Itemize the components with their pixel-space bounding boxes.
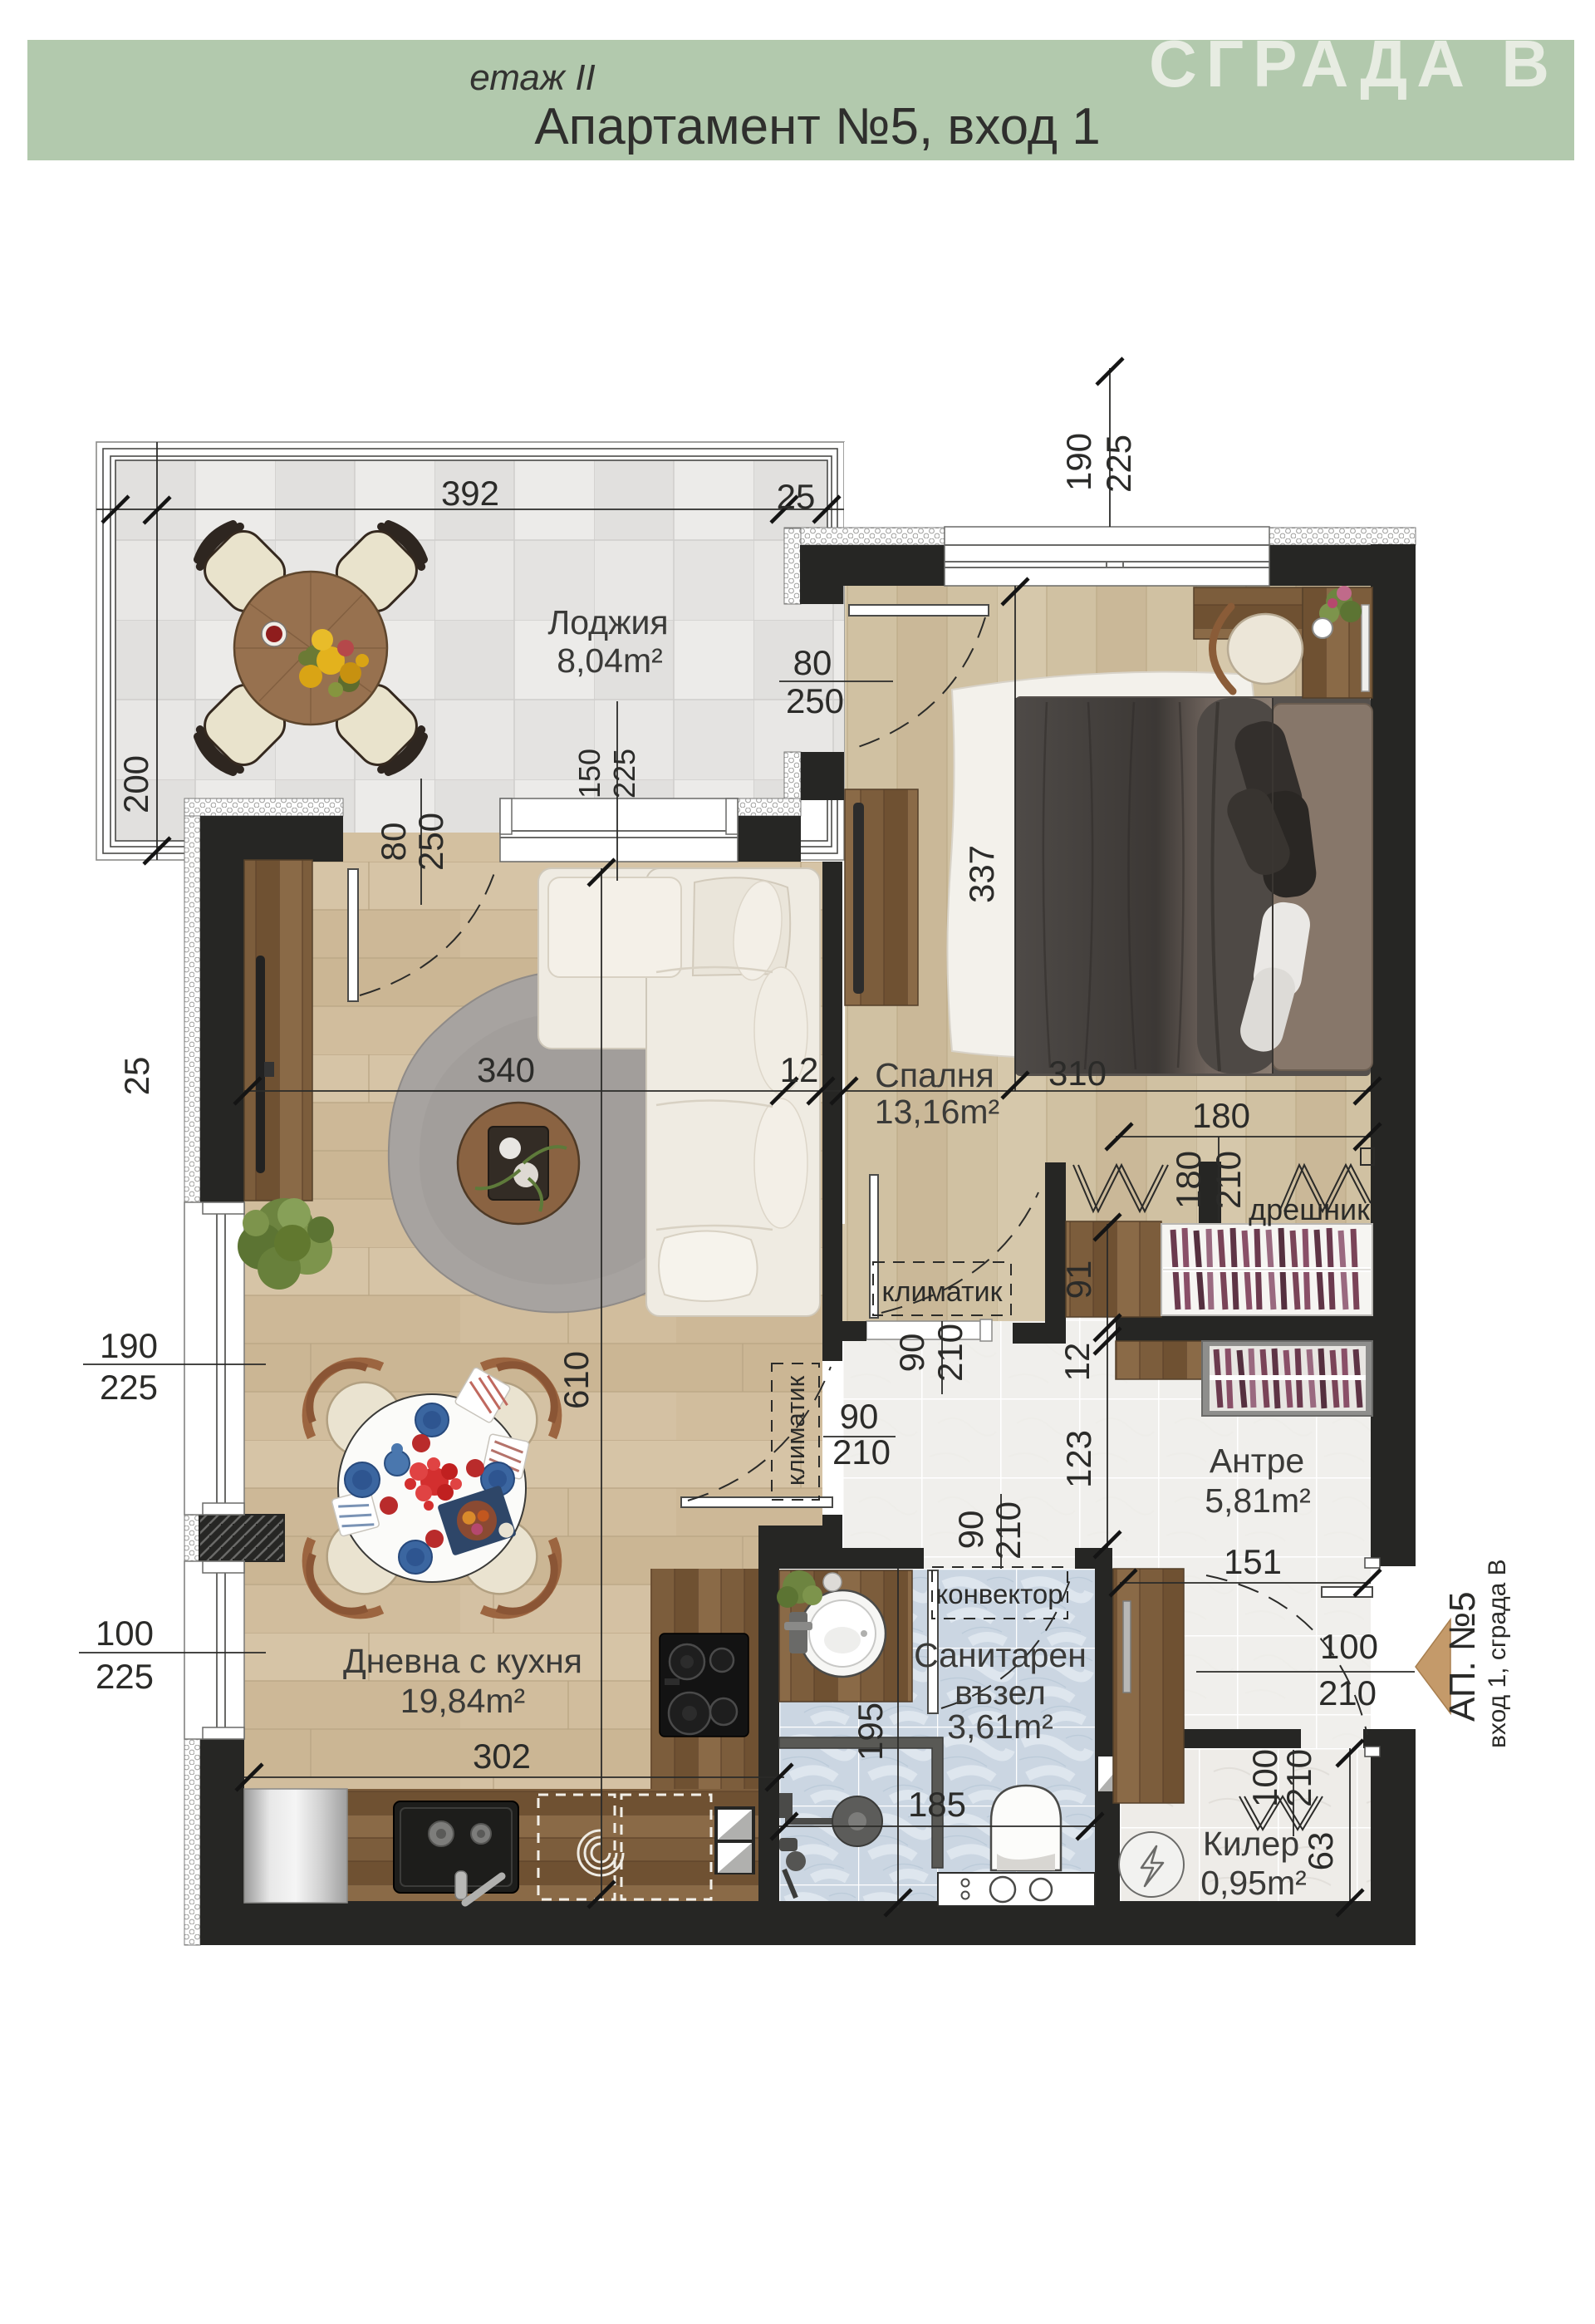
svg-text:етаж II: етаж II	[469, 57, 596, 98]
svg-text:210: 210	[1318, 1673, 1377, 1712]
svg-text:Санитарен: Санитарен	[914, 1636, 1087, 1674]
svg-text:250: 250	[786, 681, 844, 720]
svg-text:123: 123	[1059, 1430, 1098, 1488]
svg-text:Килер: Килер	[1203, 1825, 1299, 1863]
svg-text:80: 80	[793, 643, 832, 682]
svg-text:190: 190	[100, 1326, 158, 1365]
svg-text:12: 12	[780, 1050, 819, 1089]
svg-text:210: 210	[989, 1501, 1028, 1560]
svg-text:80: 80	[374, 823, 413, 862]
svg-text:195: 195	[851, 1702, 890, 1761]
svg-text:310: 310	[1048, 1054, 1107, 1093]
svg-text:25: 25	[777, 477, 816, 516]
svg-text:90: 90	[840, 1397, 879, 1436]
svg-text:Лоджия: Лоджия	[547, 603, 668, 641]
svg-text:възел: възел	[955, 1673, 1046, 1712]
svg-text:180: 180	[1192, 1096, 1250, 1135]
svg-text:392: 392	[441, 474, 499, 513]
svg-text:90: 90	[892, 1334, 931, 1373]
svg-text:91: 91	[1059, 1260, 1098, 1300]
svg-text:климатик: климатик	[881, 1276, 1003, 1308]
svg-text:25: 25	[117, 1057, 156, 1096]
svg-text:100: 100	[1320, 1627, 1378, 1666]
svg-text:340: 340	[477, 1050, 535, 1089]
svg-text:СГРАДА В: СГРАДА В	[1149, 27, 1558, 101]
svg-text:12: 12	[1058, 1343, 1097, 1382]
svg-text:63: 63	[1301, 1832, 1340, 1871]
svg-text:0,95m²: 0,95m²	[1200, 1864, 1307, 1902]
svg-text:конвектор: конвектор	[935, 1579, 1063, 1609]
svg-text:100: 100	[1245, 1749, 1284, 1807]
svg-text:210: 210	[832, 1432, 891, 1472]
svg-text:225: 225	[607, 749, 641, 798]
svg-text:250: 250	[411, 813, 450, 871]
svg-text:Апартамент №5, вход 1: Апартамент №5, вход 1	[534, 98, 1100, 155]
svg-text:19,84m²: 19,84m²	[400, 1682, 525, 1720]
svg-text:5,81m²: 5,81m²	[1205, 1481, 1311, 1520]
svg-text:90: 90	[951, 1511, 990, 1550]
svg-text:180: 180	[1169, 1151, 1208, 1209]
svg-text:8,04m²: 8,04m²	[557, 641, 663, 680]
svg-text:Антре: Антре	[1210, 1442, 1304, 1480]
svg-text:климатик: климатик	[781, 1375, 810, 1486]
svg-text:13,16m²: 13,16m²	[875, 1093, 999, 1131]
svg-text:210: 210	[930, 1324, 969, 1382]
svg-text:Спалня: Спалня	[875, 1056, 994, 1094]
svg-text:вход 1, сграда В: вход 1, сграда В	[1484, 1559, 1511, 1748]
svg-text:дрешник: дрешник	[1249, 1192, 1370, 1226]
svg-text:150: 150	[572, 749, 606, 798]
svg-text:225: 225	[100, 1368, 158, 1407]
svg-text:АП. №5: АП. №5	[1442, 1591, 1483, 1722]
svg-text:3,61m²: 3,61m²	[947, 1707, 1053, 1746]
svg-text:210: 210	[1279, 1749, 1318, 1807]
svg-text:185: 185	[908, 1785, 966, 1824]
svg-text:225: 225	[96, 1657, 154, 1696]
svg-text:Дневна с кухня: Дневна с кухня	[343, 1642, 582, 1680]
svg-text:225: 225	[1099, 435, 1138, 493]
svg-text:190: 190	[1059, 433, 1098, 491]
svg-text:610: 610	[557, 1351, 596, 1409]
svg-text:210: 210	[1209, 1151, 1248, 1209]
svg-text:337: 337	[962, 845, 1001, 903]
svg-text:200: 200	[116, 755, 155, 813]
svg-text:151: 151	[1224, 1542, 1282, 1581]
svg-text:302: 302	[473, 1737, 531, 1776]
svg-text:100: 100	[96, 1614, 154, 1653]
